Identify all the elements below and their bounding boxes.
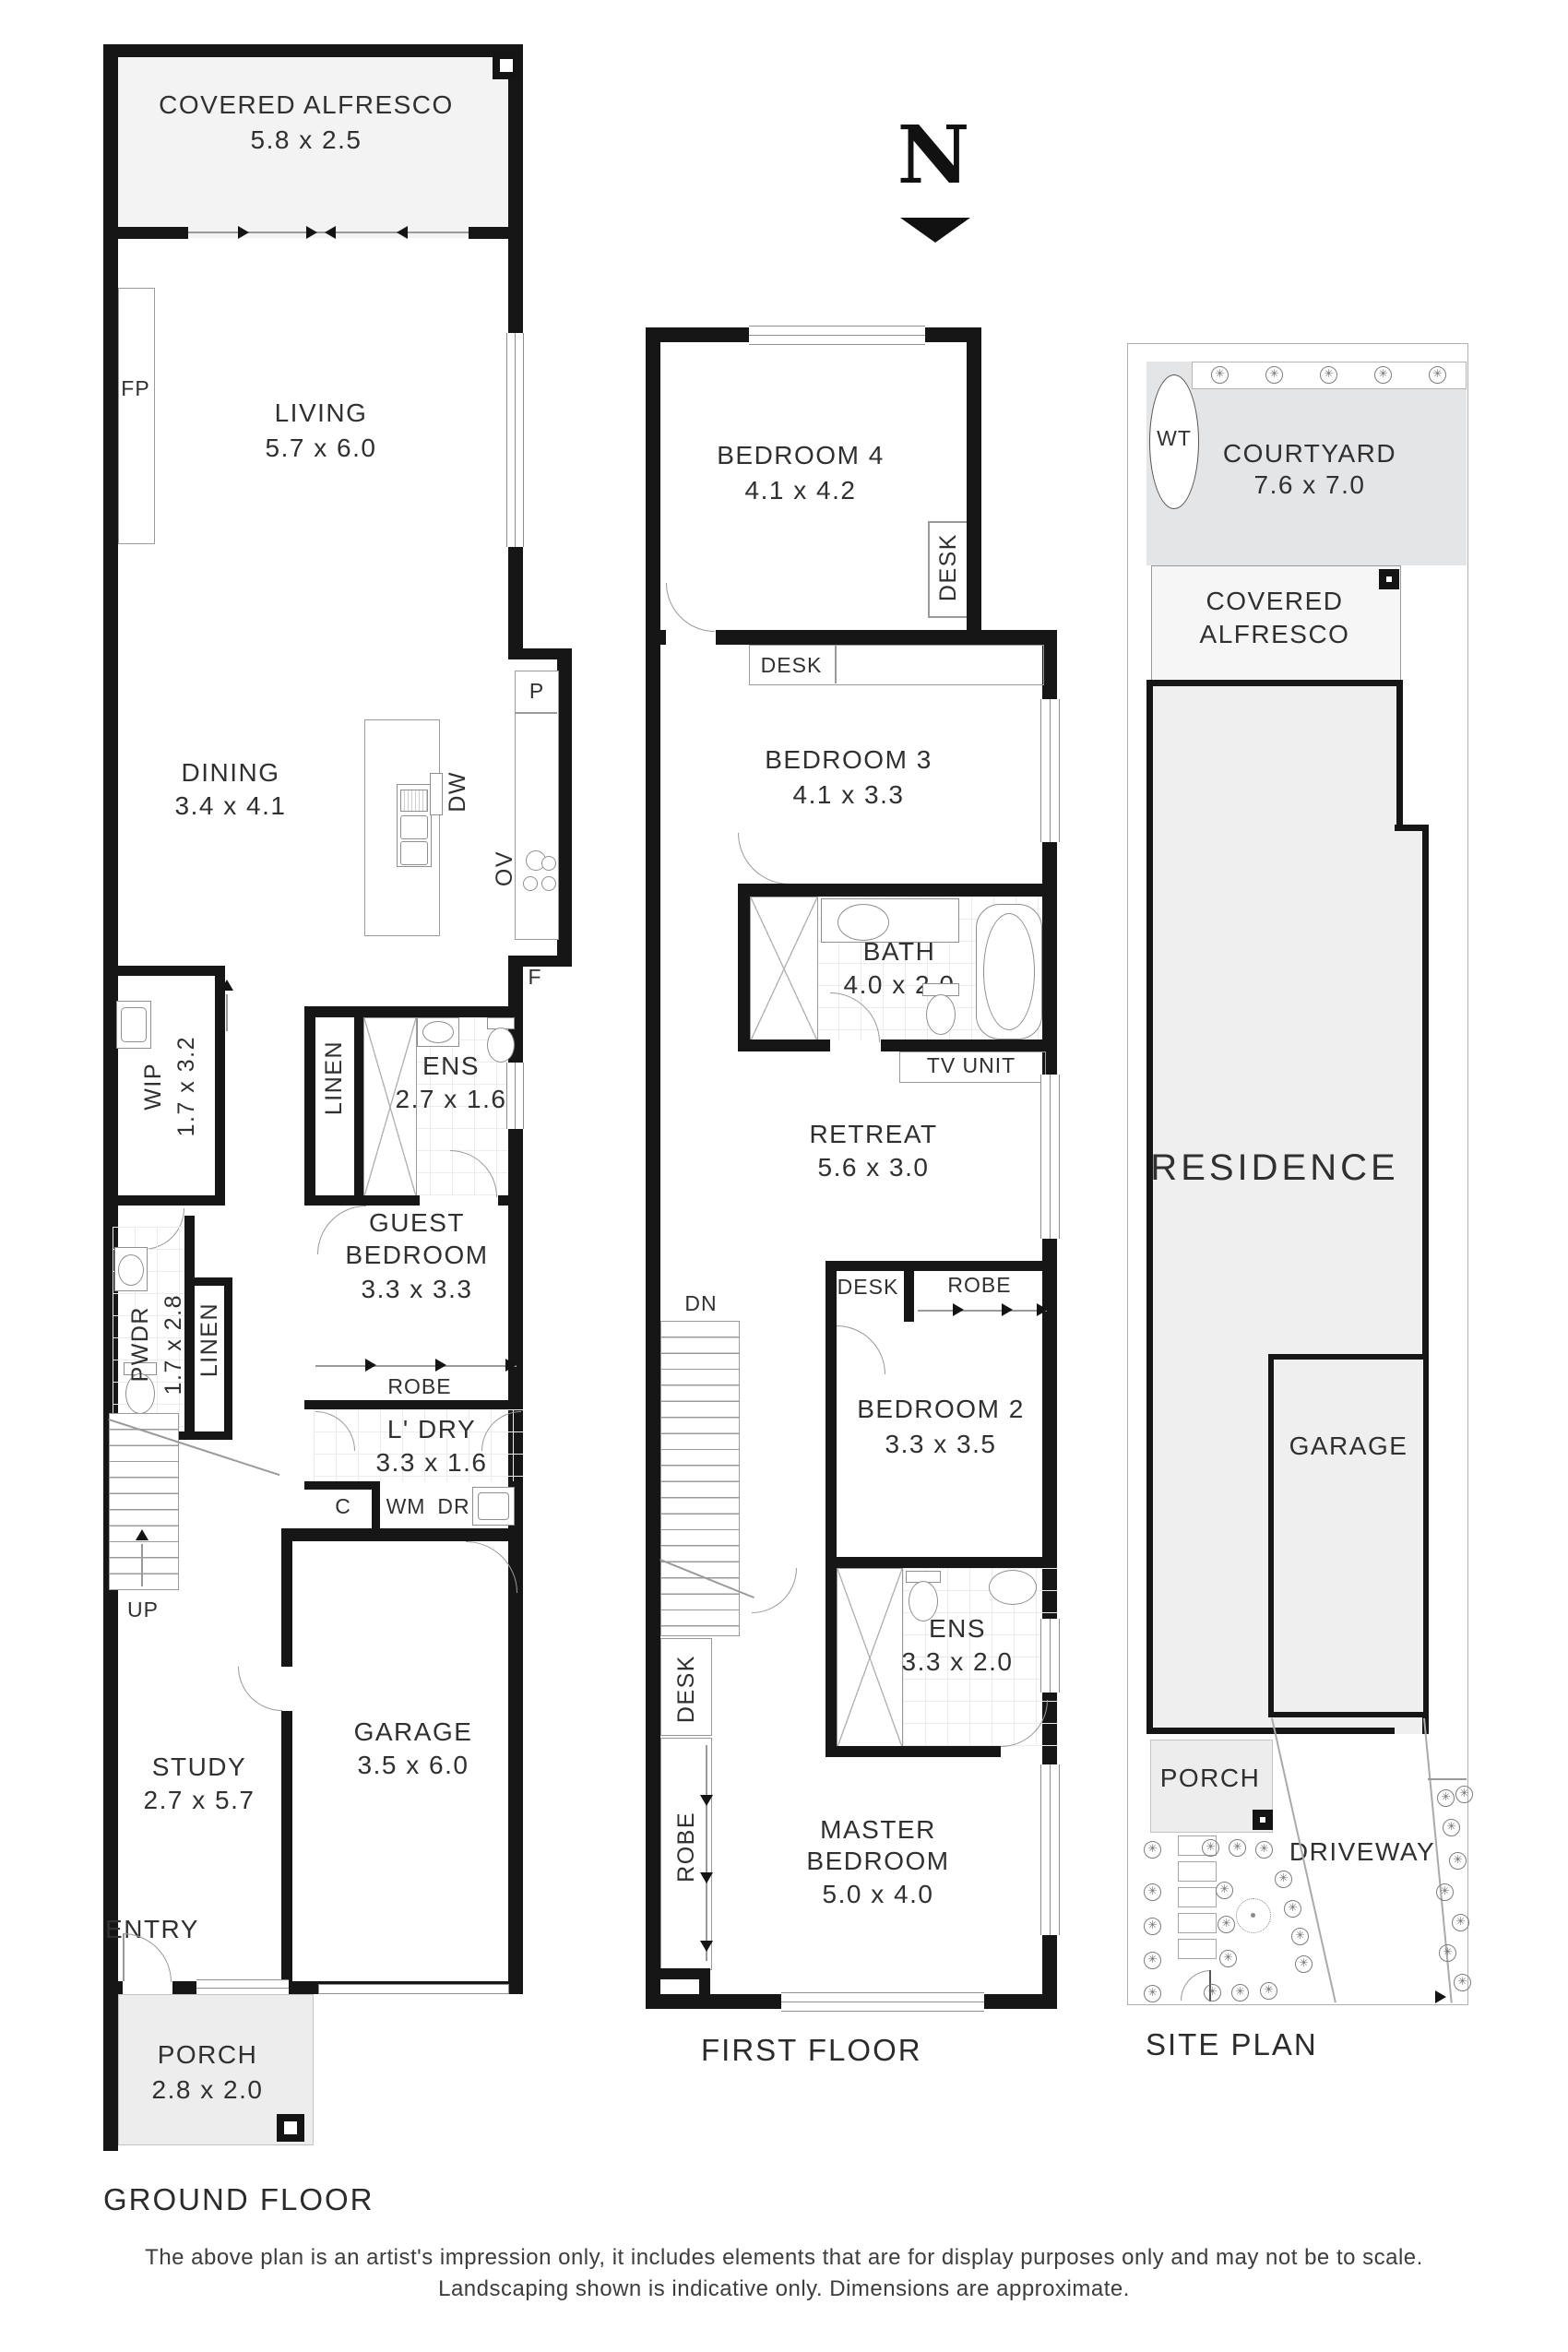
wall [103, 1195, 225, 1206]
gf-alfresco-dim: 5.8 x 2.5 [251, 125, 362, 155]
shrub-icon [1429, 366, 1446, 384]
wall [646, 327, 660, 2009]
post [277, 2114, 304, 2142]
band-desk-label: DESK [837, 1275, 899, 1300]
wall [738, 884, 1057, 897]
retreat-dim: 5.6 x 3.0 [818, 1153, 930, 1182]
bedroom2-label: BEDROOM 2 [857, 1395, 1025, 1424]
robe-arrow-icon [700, 1941, 713, 1952]
wall [281, 1528, 523, 1541]
bath-sink [837, 904, 889, 941]
bathtub-inner [983, 913, 1035, 1030]
dn-label: DN [684, 1291, 717, 1316]
robe-arrow-icon [365, 1359, 376, 1372]
master-dim: 5.0 x 4.0 [823, 1880, 934, 1909]
wall [716, 630, 1057, 645]
disclaimer-line-1: The above plan is an artist's impression… [0, 2245, 1568, 2271]
shrub-icon [1437, 1789, 1455, 1807]
gf-garage-label: GARAGE [354, 1717, 473, 1747]
walkway-arrow-icon [220, 980, 233, 991]
retreat-label: RETREAT [809, 1120, 937, 1149]
wall [103, 44, 523, 57]
shrub-icon [1275, 1871, 1292, 1888]
window [506, 333, 524, 547]
robe-track [706, 1745, 707, 1961]
disclaimer-line-2: Landscaping shown is indicative only. Di… [0, 2276, 1568, 2302]
ff-ens-dim: 3.3 x 2.0 [902, 1647, 1014, 1677]
dining-dim: 3.4 x 4.1 [175, 791, 287, 821]
ground-floor-caption: GROUND FLOOR [103, 2182, 374, 2217]
robe-arrow-icon [505, 1359, 517, 1372]
robe-arrow-icon [1037, 1303, 1048, 1316]
master-label-2: BEDROOM [806, 1847, 949, 1876]
hall-desk-label: DESK [761, 653, 823, 678]
wall [967, 327, 981, 645]
gf-porch-label: PORCH [158, 2040, 258, 2070]
master-desk-label: DESK [673, 1655, 700, 1723]
dishwasher-label: DW [445, 771, 471, 813]
wall [103, 227, 188, 239]
wall [1047, 1746, 1057, 1757]
gf-ens-sink [422, 1021, 454, 1043]
shrub-icon [1229, 1839, 1246, 1857]
shrub-icon [1291, 1928, 1309, 1945]
shrub-icon [1443, 1819, 1460, 1836]
cooktop-burner [541, 876, 556, 891]
sp-courtyard-dim: 7.6 x 7.0 [1254, 470, 1366, 500]
site-plan-caption: SITE PLAN [1146, 2027, 1318, 2062]
laundry-trough-bowl [478, 1492, 509, 1520]
shrub-icon [1374, 366, 1392, 384]
shrub-icon [1218, 1916, 1235, 1933]
stairs-down [660, 1321, 740, 1636]
boundary-line [1428, 1778, 1467, 1780]
wip-label-group: WIP 1.7 x 3.2 [140, 1010, 200, 1162]
band-robe-label: ROBE [947, 1273, 1011, 1298]
oven-label: OV [492, 850, 518, 886]
wall [984, 1994, 1057, 2009]
stair-arrow-line [141, 1544, 143, 1586]
sp-driveway-label: DRIVEWAY [1289, 1837, 1435, 1867]
ff-ens-label: ENS [929, 1614, 986, 1644]
wall [826, 1746, 1001, 1757]
pwdr-label-group: PWDR 1.7 x 2.8 [127, 1264, 187, 1425]
dishwasher [430, 773, 443, 815]
door-arrow-icon [397, 226, 408, 239]
fridge-label: F [528, 965, 541, 990]
wall [826, 1557, 837, 1757]
water-tank-label: WT [1157, 426, 1192, 451]
bench-divider [515, 712, 557, 714]
stepping-stone [1178, 1887, 1217, 1907]
wall [354, 1006, 363, 1206]
wip-dim: 1.7 x 3.2 [173, 1036, 200, 1136]
walkway-arrow-line [226, 994, 228, 1031]
cupboard-label: C [335, 1494, 351, 1519]
shrub-icon [1295, 1955, 1313, 1973]
wall [557, 648, 572, 967]
wall [646, 630, 666, 645]
window [749, 326, 925, 345]
shrub-icon [1216, 1882, 1233, 1899]
wall [738, 884, 750, 1051]
cooktop-burner [523, 876, 538, 891]
shrub-icon [1265, 366, 1283, 384]
shrub-icon [1211, 366, 1229, 384]
study-dim: 2.7 x 5.7 [144, 1786, 255, 1815]
gf-garage-dim: 3.5 x 6.0 [358, 1751, 469, 1780]
wall [738, 1039, 830, 1051]
master-robe-label: ROBE [673, 1812, 700, 1883]
wm-label: WM [386, 1494, 426, 1519]
robe-arrow-icon [953, 1303, 964, 1316]
shrub-icon [1204, 1984, 1221, 2002]
dining-label: DINING [182, 758, 280, 788]
kitchen-sink-drainer [400, 790, 428, 812]
post [493, 52, 520, 79]
wall [215, 966, 225, 1206]
pwdr-label: PWDR [127, 1306, 154, 1382]
living-dim: 5.7 x 6.0 [266, 434, 377, 463]
stepping-stone [1178, 1861, 1217, 1882]
wall [304, 1195, 420, 1206]
wall [826, 1321, 837, 1568]
north-letter: N [897, 109, 970, 202]
entry-label: ENTRY [105, 1915, 199, 1944]
desk-outline [928, 521, 967, 523]
desk-outline [928, 521, 930, 618]
door-arrow-icon [238, 226, 249, 239]
robe-arrow-icon [700, 1795, 713, 1806]
post [1253, 1810, 1273, 1830]
bedroom4-desk-label: DESK [935, 533, 962, 601]
desk-divider [835, 645, 837, 683]
wall [826, 1261, 1057, 1271]
bedroom4-label: BEDROOM 4 [717, 441, 885, 470]
floorplan-canvas: N COVERED ALFRESCO 5.8 x 2.5 FP LIVING 5… [0, 0, 1568, 2352]
window [1040, 1764, 1060, 1935]
linen-label: LINEN [196, 1302, 223, 1377]
window [1040, 1619, 1060, 1693]
robe-arrow-icon [700, 1872, 713, 1883]
post [1379, 569, 1399, 589]
shower [837, 1568, 903, 1748]
door-leaf [123, 1933, 125, 1981]
shrub-icon [1454, 1974, 1471, 1991]
desk-outline [928, 616, 967, 618]
bedroom4-dim: 4.1 x 4.2 [745, 476, 857, 505]
shrub-icon [1320, 366, 1337, 384]
stepping-stone [1178, 1939, 1217, 1959]
door-opening [123, 1981, 172, 1994]
first-floor-caption: FIRST FLOOR [701, 2033, 922, 2068]
shrub-icon [1436, 1883, 1454, 1901]
shrub-icon [1144, 1952, 1161, 1969]
wall [826, 1557, 1057, 1568]
fireplace [118, 288, 155, 544]
gf-robe-label: ROBE [387, 1374, 451, 1399]
robe-track [315, 1365, 517, 1367]
shrub-icon [1144, 1985, 1161, 2002]
robe-arrow-icon [435, 1359, 446, 1372]
door-arc [238, 1667, 282, 1711]
gf-ens-toilet [487, 1028, 515, 1063]
study-label: STUDY [152, 1752, 246, 1782]
kitchen-bench [515, 671, 559, 940]
shrub-icon [1202, 1839, 1219, 1857]
wall [103, 966, 225, 976]
door-arrow-icon [325, 226, 336, 239]
window [1040, 1075, 1060, 1239]
shrub-icon [1284, 1900, 1301, 1918]
wall [881, 1039, 1057, 1051]
sp-alfresco-label-1: COVERED [1206, 587, 1344, 616]
bedroom3-dim: 4.1 x 3.3 [793, 780, 905, 810]
gf-porch-dim: 2.8 x 2.0 [152, 2075, 264, 2105]
guest-bedroom-label-2: BEDROOM [345, 1241, 488, 1270]
sp-alfresco-label-2: ALFRESCO [1200, 620, 1350, 649]
shrub-icon [1144, 1841, 1161, 1859]
gf-ens-label: ENS [422, 1051, 480, 1081]
gf-ens-dim: 2.7 x 1.6 [396, 1085, 507, 1114]
shrub-icon [1260, 1982, 1277, 2000]
door-arc [738, 833, 790, 885]
shrub-icon [1455, 1786, 1473, 1803]
living-label: LIVING [275, 398, 368, 428]
laundry-label: L' DRY [387, 1415, 476, 1444]
north-arrow-icon [900, 218, 970, 243]
garage-door [318, 1984, 509, 1994]
wall [826, 1261, 837, 1322]
shrub-icon [1144, 1918, 1161, 1935]
master-label-1: MASTER [820, 1815, 936, 1845]
bedroom3-label: BEDROOM 3 [765, 745, 932, 775]
wall [103, 44, 118, 2151]
pwdr-dim: 1.7 x 2.8 [160, 1294, 187, 1395]
window [1040, 699, 1060, 842]
robe-track [918, 1310, 1047, 1312]
sp-garage-area [1268, 1354, 1429, 1717]
bath-toilet [926, 994, 956, 1035]
kitchen-sink-bowl [400, 841, 428, 865]
access-arrow-icon [1435, 1990, 1446, 2003]
wall [498, 1195, 523, 1206]
cooktop-burner [541, 856, 556, 871]
wall [304, 1006, 523, 1017]
wall [304, 1006, 315, 1206]
wall [508, 239, 523, 333]
up-label: UP [127, 1598, 159, 1622]
gf-alfresco-label: COVERED ALFRESCO [159, 90, 454, 120]
shrub-icon [1452, 1914, 1469, 1931]
wall [646, 327, 749, 342]
shrub-icon [1255, 1841, 1273, 1859]
robe-arrow-icon [1002, 1303, 1013, 1316]
shrub-icon [1439, 1944, 1456, 1962]
wip-label: WIP [140, 1063, 167, 1111]
door-arc [837, 1325, 885, 1374]
shrub-icon [1144, 1883, 1161, 1901]
sp-garage-label: GARAGE [1289, 1431, 1408, 1461]
wall [304, 1400, 523, 1409]
bedroom2-dim: 3.3 x 3.5 [885, 1430, 997, 1459]
tv-unit-label: TV UNIT [927, 1053, 1016, 1078]
tree-icon [1236, 1898, 1271, 1933]
pantry-label: P [529, 679, 544, 704]
shrub-icon [1449, 1852, 1467, 1870]
window [506, 1063, 524, 1129]
shrub-icon [1231, 1984, 1249, 2002]
dryer-label: DR [437, 1494, 469, 1519]
guest-bedroom-label-1: GUEST [369, 1208, 465, 1238]
fireplace-label: FP [121, 376, 149, 401]
kitchen-sink-bowl [400, 815, 428, 839]
stair-arrow-icon [136, 1529, 148, 1540]
wall [304, 1481, 380, 1490]
wall [904, 1261, 914, 1322]
wall [281, 1528, 292, 1667]
shrub-icon [1219, 1950, 1237, 1967]
wall [469, 227, 523, 239]
wall [646, 1994, 781, 2009]
door-arrow-icon [306, 226, 317, 239]
wall [281, 1711, 292, 1988]
ff-ens-sink [989, 1570, 1037, 1605]
wall [224, 1277, 232, 1440]
window [781, 1992, 984, 2012]
laundry-dim: 3.3 x 1.6 [376, 1448, 488, 1478]
guest-bedroom-dim: 3.3 x 3.3 [362, 1275, 473, 1304]
stepping-stone [1178, 1913, 1217, 1933]
bath-label: BATH [863, 937, 936, 967]
sp-porch-label: PORCH [1160, 1764, 1261, 1793]
door-arc [666, 583, 715, 632]
wall [508, 547, 523, 659]
sp-courtyard-label: COURTYARD [1223, 439, 1396, 469]
linen-label: LINEN [321, 1040, 348, 1115]
door-arc [752, 1568, 797, 1613]
shower [750, 897, 818, 1041]
sp-residence-label: RESIDENCE [1150, 1147, 1398, 1189]
